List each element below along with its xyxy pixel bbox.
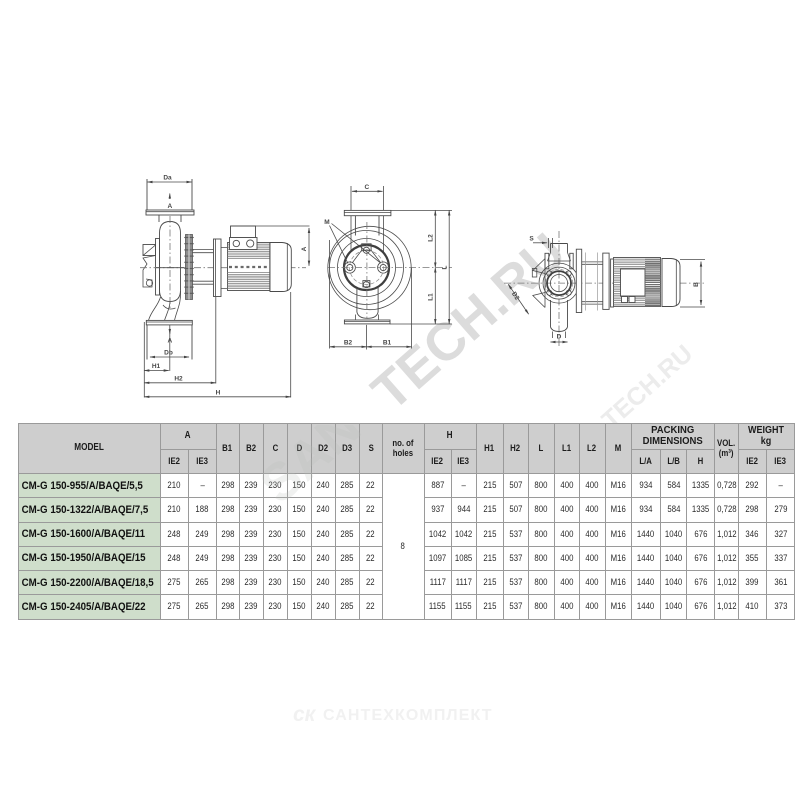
svg-text:B: B — [693, 282, 700, 287]
svg-text:B2: B2 — [344, 339, 353, 346]
svg-text:L2: L2 — [428, 234, 435, 242]
svg-text:S: S — [529, 236, 534, 243]
svg-text:H: H — [216, 389, 221, 396]
svg-text:M: M — [324, 219, 329, 226]
svg-text:L1: L1 — [428, 293, 435, 301]
svg-text:Db: Db — [164, 350, 173, 357]
svg-text:H2: H2 — [174, 375, 183, 382]
svg-text:D: D — [557, 334, 562, 341]
svg-text:A: A — [301, 246, 308, 251]
svg-text:H1: H1 — [152, 363, 161, 370]
svg-text:L: L — [442, 265, 449, 269]
svg-text:Da: Da — [163, 175, 172, 182]
svg-text:B1: B1 — [383, 339, 392, 346]
svg-text:C: C — [364, 184, 369, 191]
svg-text:A: A — [167, 203, 172, 210]
